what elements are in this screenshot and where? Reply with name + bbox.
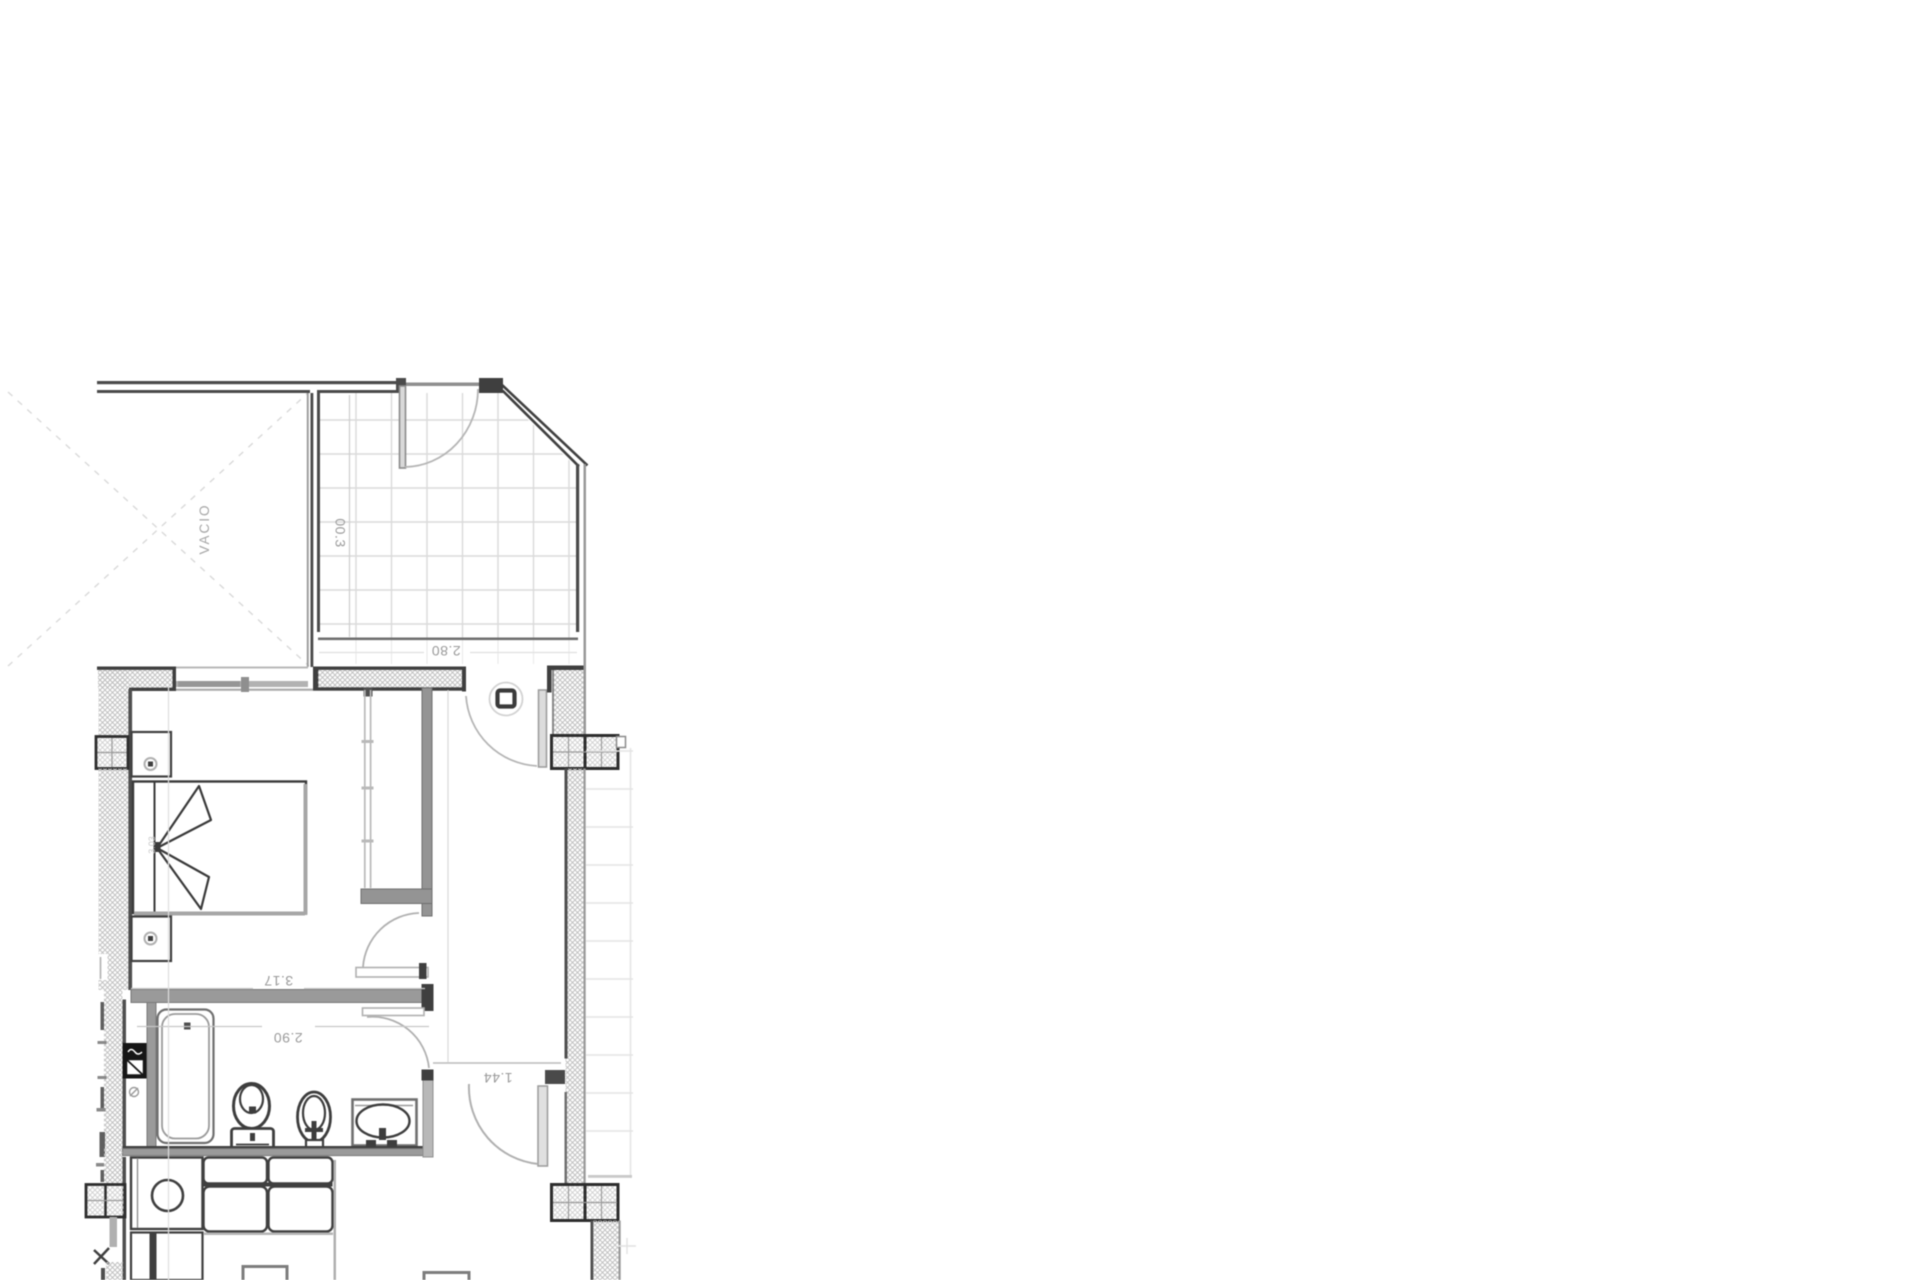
svg-text:00.3: 00.3 [333,518,349,547]
svg-text:2.90: 2.90 [273,1030,302,1046]
svg-text:1.44: 1.44 [483,1070,512,1086]
svg-text:VACIO: VACIO [197,503,212,554]
svg-text:3.17: 3.17 [264,973,293,989]
svg-text:3.03: 3.03 [147,836,157,854]
svg-text:2.80: 2.80 [431,643,460,659]
